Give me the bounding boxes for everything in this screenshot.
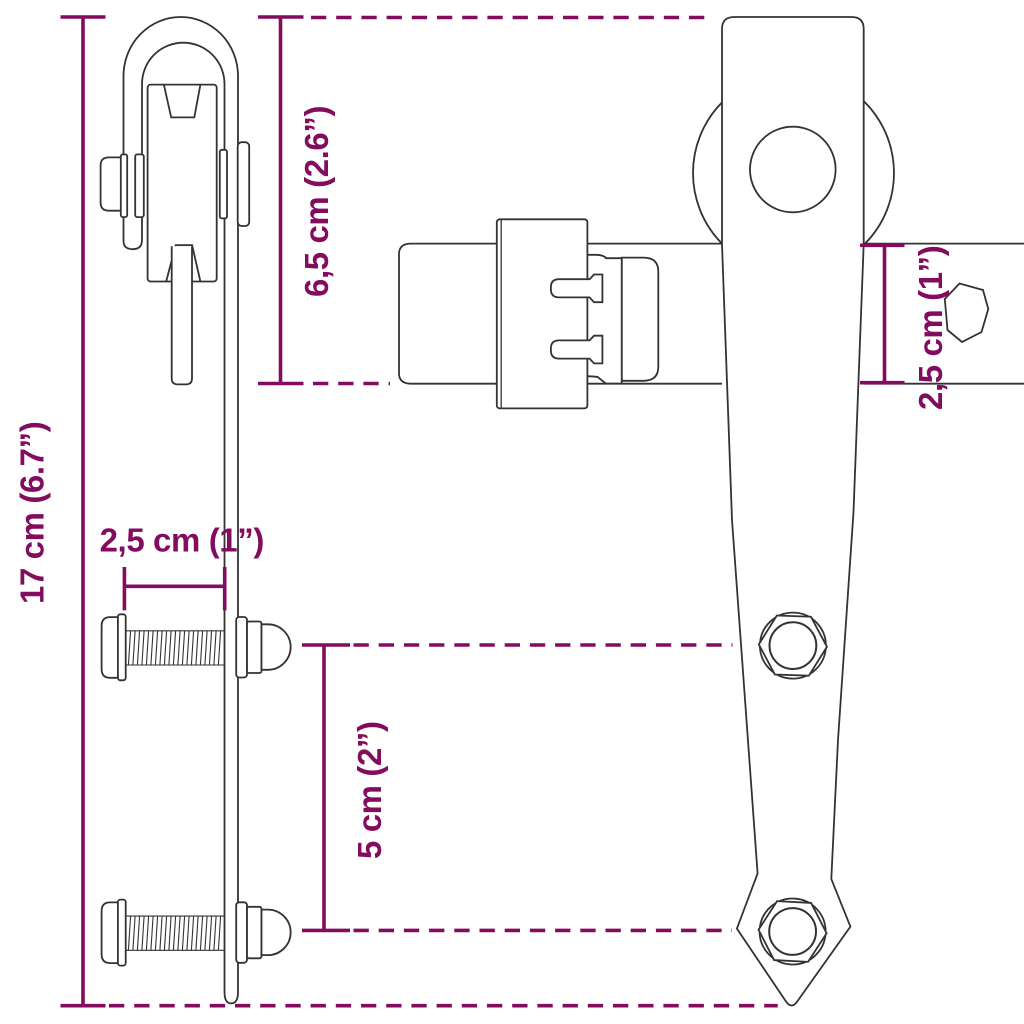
svg-text:6,5 cm (2.6”): 6,5 cm (2.6”) xyxy=(298,106,335,297)
svg-text:2,5 cm (1”): 2,5 cm (1”) xyxy=(912,246,949,410)
svg-text:17 cm (6.7”): 17 cm (6.7”) xyxy=(14,422,51,604)
svg-text:5 cm (2”): 5 cm (2”) xyxy=(351,721,388,859)
svg-text:2,5 cm (1”): 2,5 cm (1”) xyxy=(100,522,264,559)
